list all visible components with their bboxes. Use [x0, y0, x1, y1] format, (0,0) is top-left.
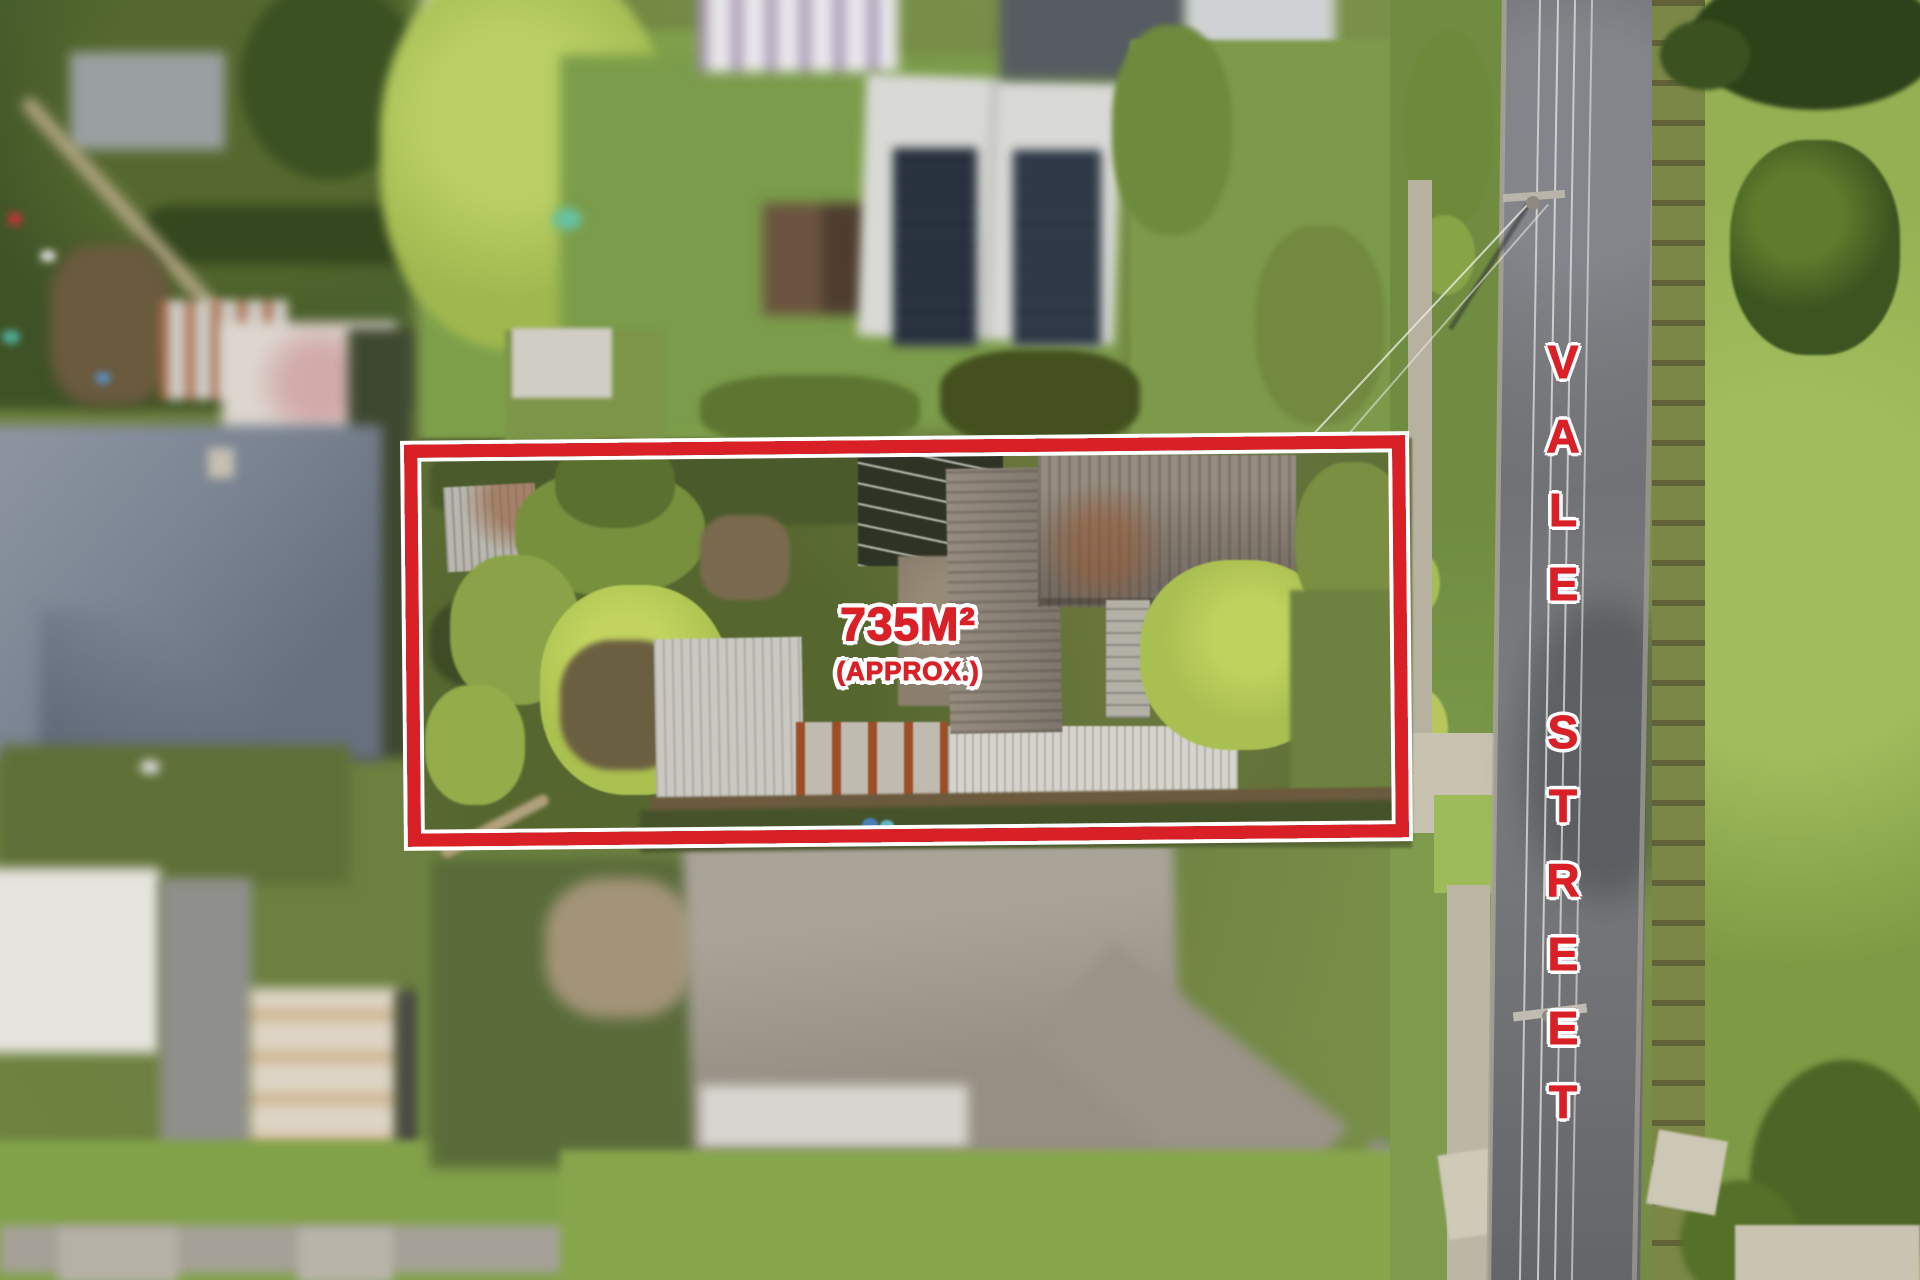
striped-building-roof	[698, 0, 898, 72]
fence-line-strip	[1652, 0, 1712, 1280]
yard-speck	[2, 330, 20, 344]
approx-label: (APPROX.)	[836, 658, 979, 684]
lawn-bright	[560, 1150, 1460, 1280]
yard-speck	[8, 212, 22, 226]
grass-square	[1434, 795, 1498, 893]
bare-patch	[545, 878, 695, 1018]
aerial-photo-page: 735M² (APPROX.) VALE STREET	[0, 0, 1920, 1280]
kerb-ramp	[1646, 1129, 1728, 1215]
driveway	[58, 1228, 178, 1280]
street-tree	[1112, 25, 1232, 235]
bare-ground	[50, 245, 170, 405]
pool-dot	[552, 208, 582, 230]
tree-canopy	[700, 375, 920, 445]
street-tree	[1255, 225, 1385, 425]
shed-roof	[70, 52, 225, 150]
brown-roof-building	[763, 203, 871, 315]
chimney	[208, 448, 234, 478]
garden-strip	[0, 745, 350, 885]
yard-speck	[140, 760, 160, 774]
tree-canopy	[1660, 20, 1750, 90]
driveway	[298, 1228, 393, 1280]
corner-path	[1735, 1225, 1920, 1280]
big-tree	[1730, 140, 1900, 355]
roof-white-section	[700, 1085, 968, 1147]
power-pole	[1526, 196, 1540, 210]
tree-canopy	[940, 350, 1140, 445]
solar-panel	[893, 148, 977, 346]
yard-speck	[95, 372, 111, 384]
white-roof-building	[0, 868, 160, 1053]
street-name-label: VALE STREET	[1540, 336, 1586, 1150]
area-label: 735M²	[840, 601, 975, 647]
solar-panel	[1013, 150, 1101, 346]
roof-gable-shading	[40, 610, 300, 760]
shed-roof	[512, 328, 612, 398]
yard-speck	[40, 250, 56, 262]
